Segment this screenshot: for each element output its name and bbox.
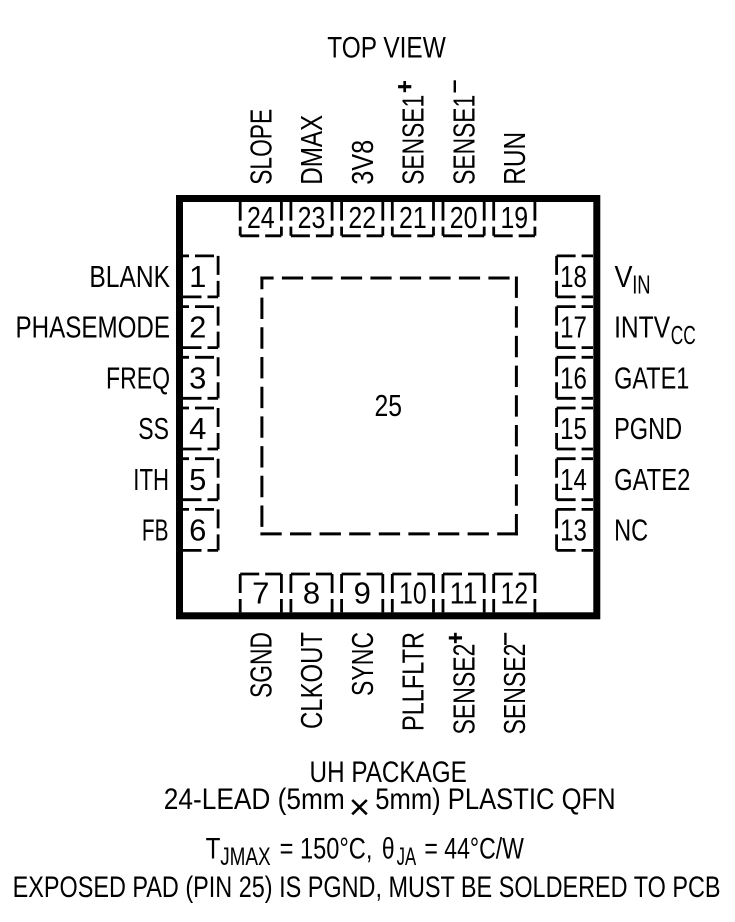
- svg-text:RUN: RUN: [497, 132, 532, 185]
- svg-text:BLANK: BLANK: [89, 259, 170, 294]
- svg-text:SENSE1: SENSE1: [446, 95, 481, 185]
- svg-text:11: 11: [450, 575, 478, 610]
- svg-text:ITH: ITH: [133, 462, 169, 497]
- svg-text:15: 15: [560, 411, 587, 446]
- svg-text:NC: NC: [614, 513, 648, 548]
- svg-text:SYNC: SYNC: [345, 632, 380, 696]
- svg-text:GATE1: GATE1: [614, 360, 689, 395]
- svg-text:17: 17: [560, 310, 587, 345]
- svg-text:GATE2: GATE2: [614, 462, 690, 497]
- svg-text:T: T: [206, 833, 221, 866]
- svg-text:24-LEAD (5mm: 24-LEAD (5mm: [164, 783, 345, 816]
- svg-text:14: 14: [560, 462, 587, 497]
- svg-text:SENSE2: SENSE2: [446, 644, 481, 735]
- svg-text:INTV: INTV: [614, 310, 670, 345]
- svg-text:SS: SS: [138, 411, 169, 446]
- svg-text:PLLFLTR: PLLFLTR: [396, 632, 431, 731]
- svg-text:FB: FB: [142, 513, 169, 548]
- svg-text:EXPOSED PAD (PIN 25) IS PGND,: EXPOSED PAD (PIN 25) IS PGND, MUST BE SO…: [13, 871, 721, 904]
- svg-text:13: 13: [560, 513, 587, 548]
- svg-text:SENSE2: SENSE2: [497, 644, 532, 735]
- svg-text:16: 16: [560, 360, 587, 395]
- svg-text:5: 5: [189, 462, 206, 497]
- svg-text:2: 2: [189, 310, 206, 345]
- svg-text:FREQ: FREQ: [106, 360, 170, 395]
- svg-text:6: 6: [189, 513, 206, 548]
- svg-text:JA: JA: [397, 843, 417, 871]
- svg-text:5mm) PLASTIC QFN: 5mm) PLASTIC QFN: [375, 783, 615, 816]
- svg-text:PHASEMODE: PHASEMODE: [16, 310, 171, 345]
- svg-text:SGND: SGND: [243, 632, 278, 698]
- svg-text:8: 8: [303, 575, 320, 610]
- svg-text:12: 12: [500, 575, 528, 610]
- svg-text:1: 1: [189, 259, 206, 294]
- svg-text:19: 19: [500, 200, 528, 235]
- svg-text:25: 25: [374, 388, 402, 423]
- svg-text:= 44°C/W: = 44°C/W: [424, 833, 524, 866]
- svg-text:PGND: PGND: [614, 411, 682, 446]
- svg-text:4: 4: [189, 411, 206, 446]
- svg-text:7: 7: [252, 575, 269, 610]
- svg-text:22: 22: [348, 200, 376, 235]
- svg-text:20: 20: [450, 200, 478, 235]
- svg-text:CLKOUT: CLKOUT: [294, 632, 329, 729]
- svg-text:3: 3: [189, 360, 206, 395]
- svg-text:JMAX: JMAX: [220, 843, 271, 871]
- svg-text:SENSE1: SENSE1: [396, 95, 431, 185]
- svg-text:18: 18: [560, 259, 587, 294]
- svg-text:IN: IN: [632, 269, 650, 299]
- svg-text:21: 21: [399, 200, 427, 235]
- svg-text:24: 24: [247, 200, 275, 235]
- svg-text:10: 10: [399, 575, 427, 610]
- svg-text:23: 23: [298, 200, 326, 235]
- svg-text:θ: θ: [382, 833, 395, 866]
- svg-text:3V8: 3V8: [345, 140, 380, 185]
- svg-text:9: 9: [354, 575, 371, 610]
- svg-text:CC: CC: [671, 320, 696, 350]
- svg-text:DMAX: DMAX: [294, 115, 329, 185]
- svg-text:V: V: [615, 259, 633, 294]
- svg-text:TOP VIEW: TOP VIEW: [327, 31, 446, 64]
- svg-text:SLOPE: SLOPE: [243, 109, 278, 185]
- svg-text:= 150°C,: = 150°C,: [280, 833, 373, 866]
